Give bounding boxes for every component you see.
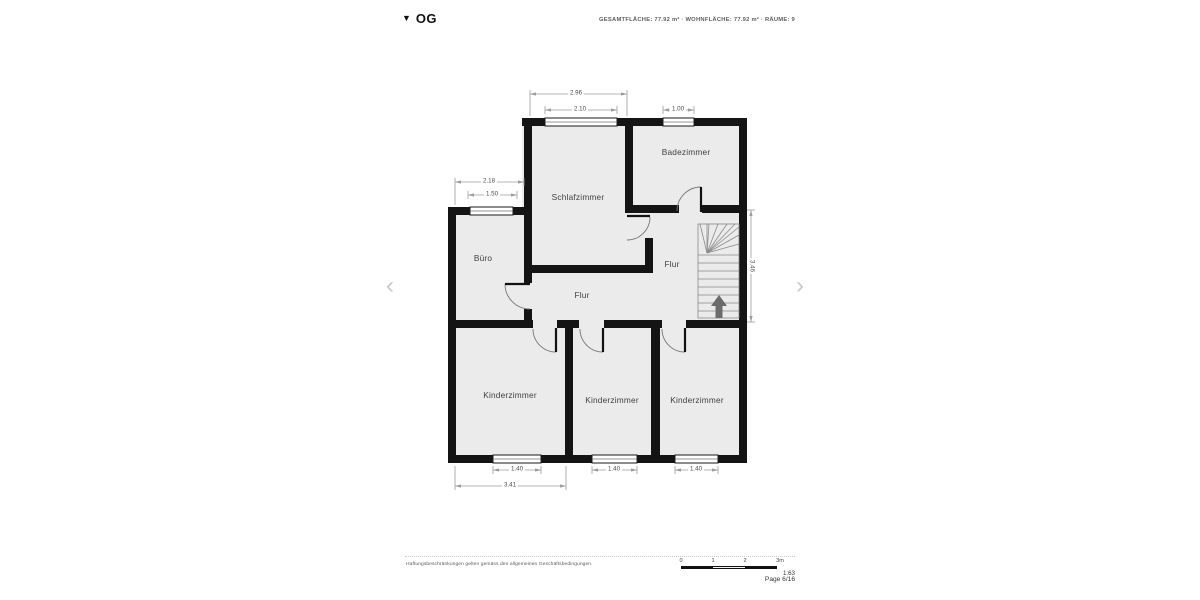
dimension-flur-height: 3.46 [748, 258, 755, 274]
footer-divider [405, 556, 795, 557]
dimension-kinderzimmer-right-window: 1.40 [688, 467, 704, 474]
scale-tick-0: 0 [679, 558, 682, 564]
dimension-kinderzimmer-left-window: 1.40 [509, 467, 525, 474]
dimension-schlafzimmer-window: 2.10 [572, 107, 588, 114]
dimension-buero-window: 1.50 [484, 192, 500, 199]
scale-bar [681, 566, 777, 569]
room-label-kinderzimmer-middle: Kinderzimmer [585, 395, 639, 405]
scale-bar-segment [681, 566, 713, 569]
floorplan-drawing [0, 0, 1200, 600]
disclaimer-text: Haftungsbeschränkungen gelten gemäss den… [406, 562, 593, 567]
room-label-schlafzimmer: Schlafzimmer [552, 192, 605, 202]
scale-bar-segment [713, 566, 745, 569]
scale-bar-segment [745, 566, 777, 569]
room-label-kinderzimmer-right: Kinderzimmer [670, 395, 724, 405]
scale-tick-1: 1 [711, 558, 714, 564]
building-footprint [448, 118, 747, 463]
room-label-buero: Büro [474, 253, 492, 263]
dimension-kinderzimmer-middle-window: 1.40 [606, 467, 622, 474]
room-label-badezimmer: Badezimmer [662, 147, 711, 157]
dimension-buero-width: 2.18 [481, 179, 497, 186]
scale-tick-2: 2 [743, 558, 746, 564]
room-label-flur-lower: Flur [574, 290, 589, 300]
scale-tick-3: 3m [776, 558, 784, 564]
dimension-schlafzimmer-width: 2.96 [568, 91, 584, 98]
room-label-kinderzimmer-left: Kinderzimmer [483, 390, 537, 400]
page-number: Page 6/16 [765, 576, 795, 583]
room-label-flur-upper: Flur [664, 259, 679, 269]
dimension-kinderzimmer-left-width: 3.41 [502, 483, 518, 490]
dimension-badezimmer-window: 1.00 [670, 107, 686, 114]
